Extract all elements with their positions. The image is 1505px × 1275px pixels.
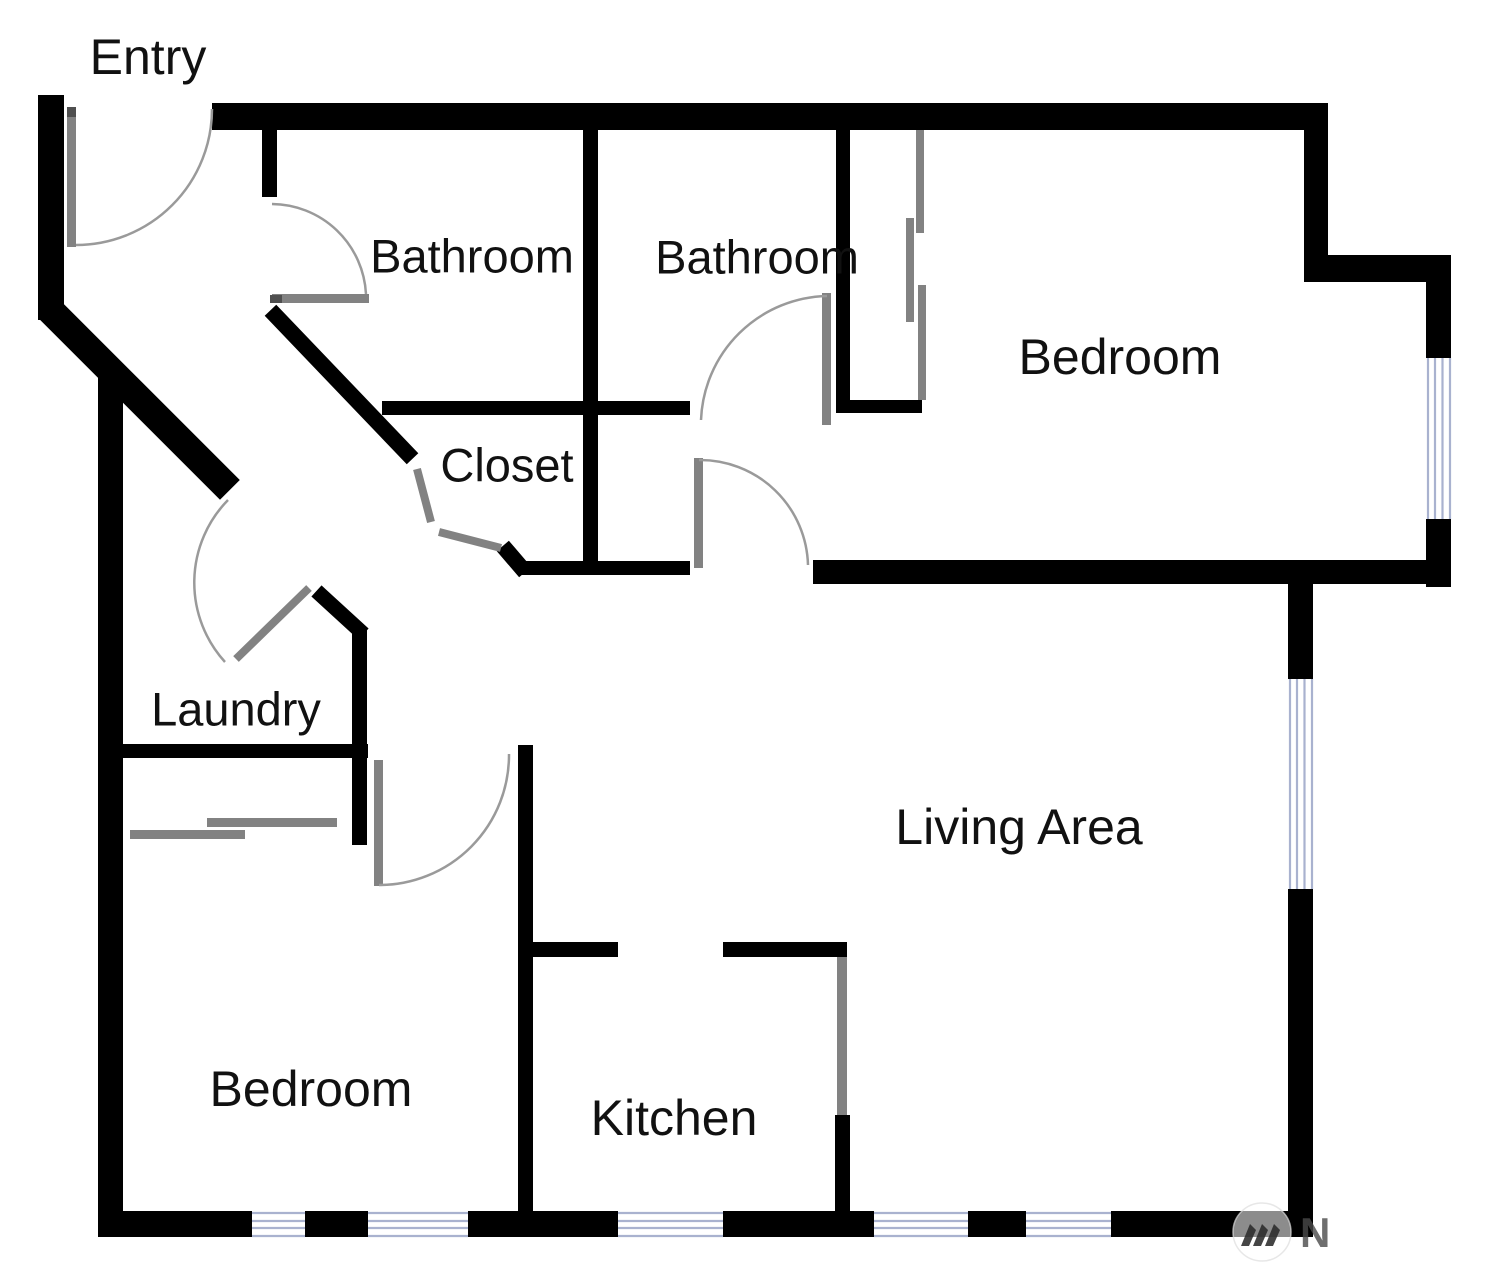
laundry-door-leaf bbox=[236, 588, 309, 659]
room-label-entry: Entry bbox=[90, 28, 207, 86]
bathroom2-door-swing-arc bbox=[701, 296, 827, 420]
closet-bifold-door-panel-2 bbox=[439, 532, 501, 548]
window bbox=[618, 1213, 723, 1236]
window bbox=[368, 1213, 468, 1236]
bedroom-lower-door-swing-arc bbox=[379, 754, 509, 885]
wall-diagonal-laundry bbox=[322, 596, 358, 629]
room-label-living-area: Living Area bbox=[895, 798, 1142, 856]
bedroom-upper-door-swing-arc bbox=[699, 460, 808, 565]
window bbox=[252, 1213, 305, 1236]
entry-door-swing-arc bbox=[76, 109, 212, 245]
window bbox=[874, 1213, 968, 1236]
floor-plan: N Entry Bathroom Bathroom Bedroom Closet… bbox=[0, 0, 1505, 1275]
door-swing-arcs bbox=[76, 109, 827, 885]
bathroom1-door-swing-arc bbox=[272, 204, 366, 294]
wall-diagonal-bathroom bbox=[276, 316, 407, 453]
laundry-door-swing-arc bbox=[194, 500, 228, 662]
room-label-laundry: Laundry bbox=[151, 682, 321, 737]
closet-bifold-door-panel-1 bbox=[417, 469, 431, 522]
watermark-letter: N bbox=[1300, 1209, 1330, 1256]
room-label-bedroom-lower: Bedroom bbox=[210, 1060, 413, 1118]
window bbox=[1428, 358, 1450, 519]
wall-diagonal-closet-corner bbox=[508, 552, 520, 566]
watermark: N bbox=[1233, 1203, 1330, 1261]
room-label-bathroom-1: Bathroom bbox=[370, 229, 574, 284]
room-label-bedroom-upper: Bedroom bbox=[1019, 328, 1222, 386]
window bbox=[1290, 679, 1312, 889]
room-label-kitchen: Kitchen bbox=[591, 1089, 758, 1147]
windows bbox=[252, 358, 1450, 1236]
room-label-closet: Closet bbox=[440, 438, 573, 493]
door-leaf-end-caps bbox=[67, 107, 282, 303]
window bbox=[1026, 1213, 1111, 1236]
wall-diagonal-entry bbox=[58, 318, 220, 480]
room-label-bathroom-2: Bathroom bbox=[655, 230, 859, 285]
